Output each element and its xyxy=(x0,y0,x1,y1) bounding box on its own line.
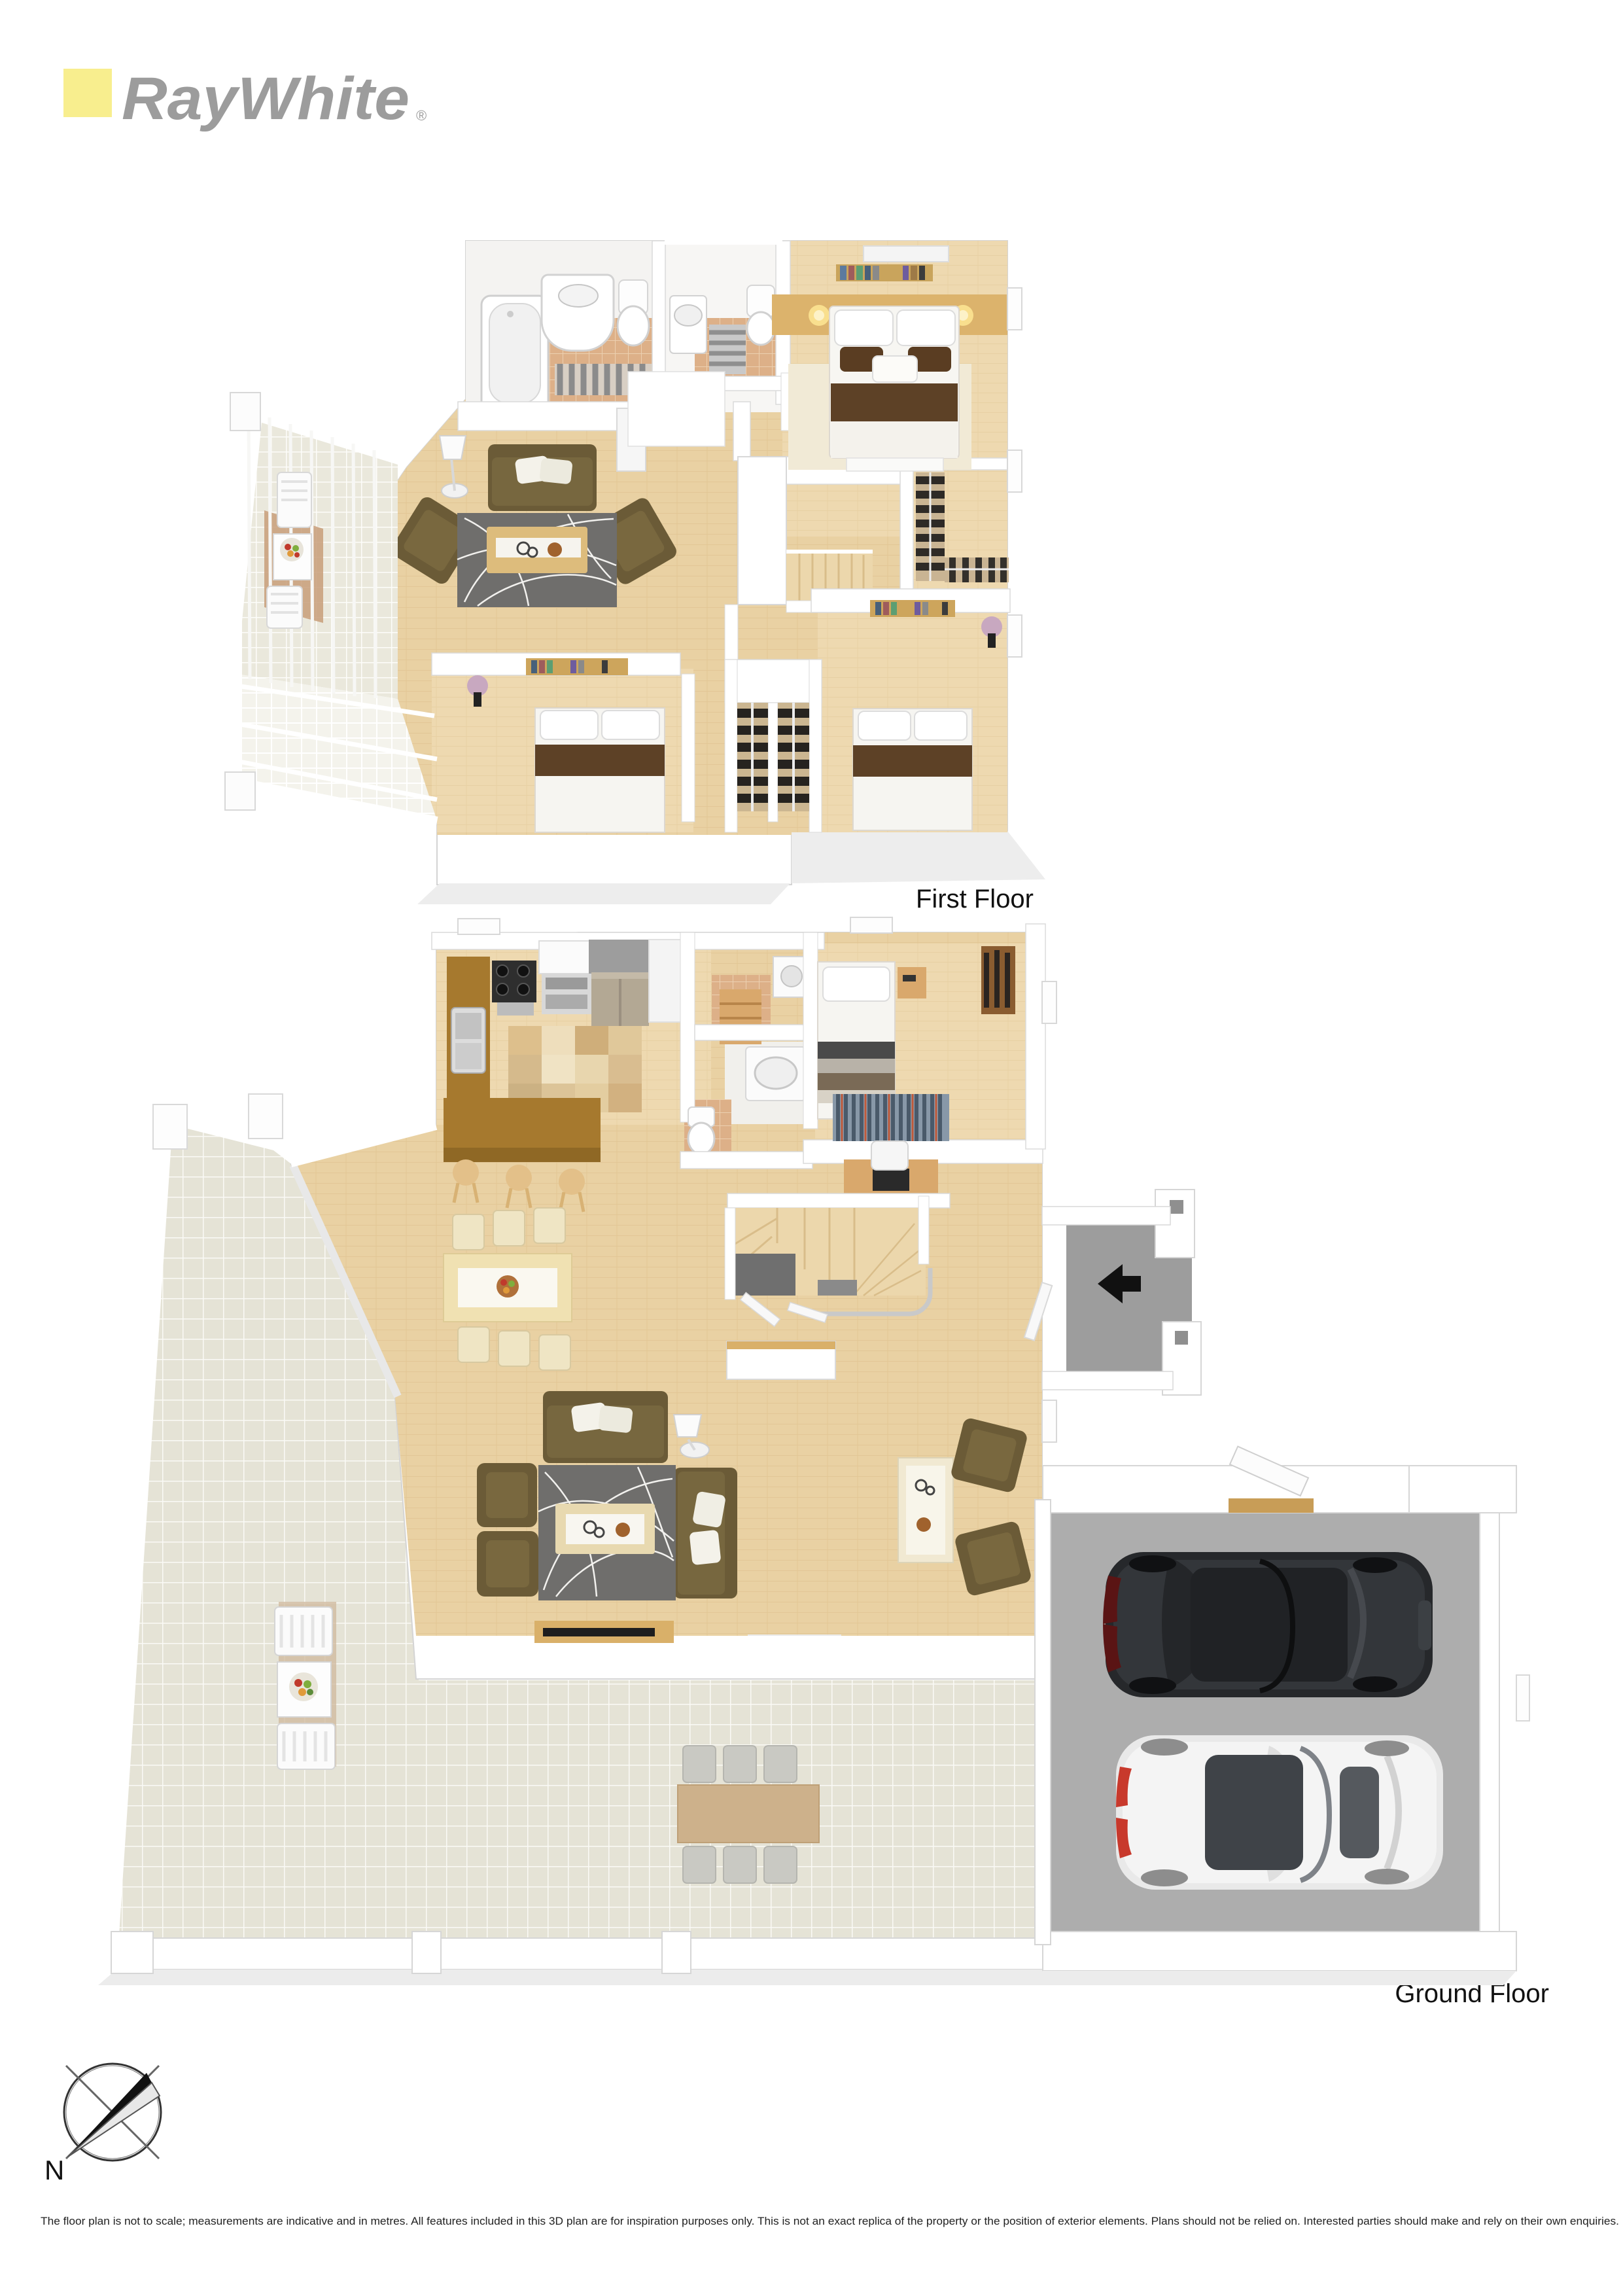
svg-text:RayWhite: RayWhite xyxy=(122,65,410,132)
svg-text:The floor plan is not to scale: The floor plan is not to scale; measurem… xyxy=(41,2215,1619,2227)
svg-text:®: ® xyxy=(416,107,427,124)
svg-text:First Floor: First Floor xyxy=(916,885,1034,913)
svg-text:N: N xyxy=(44,2155,64,2185)
